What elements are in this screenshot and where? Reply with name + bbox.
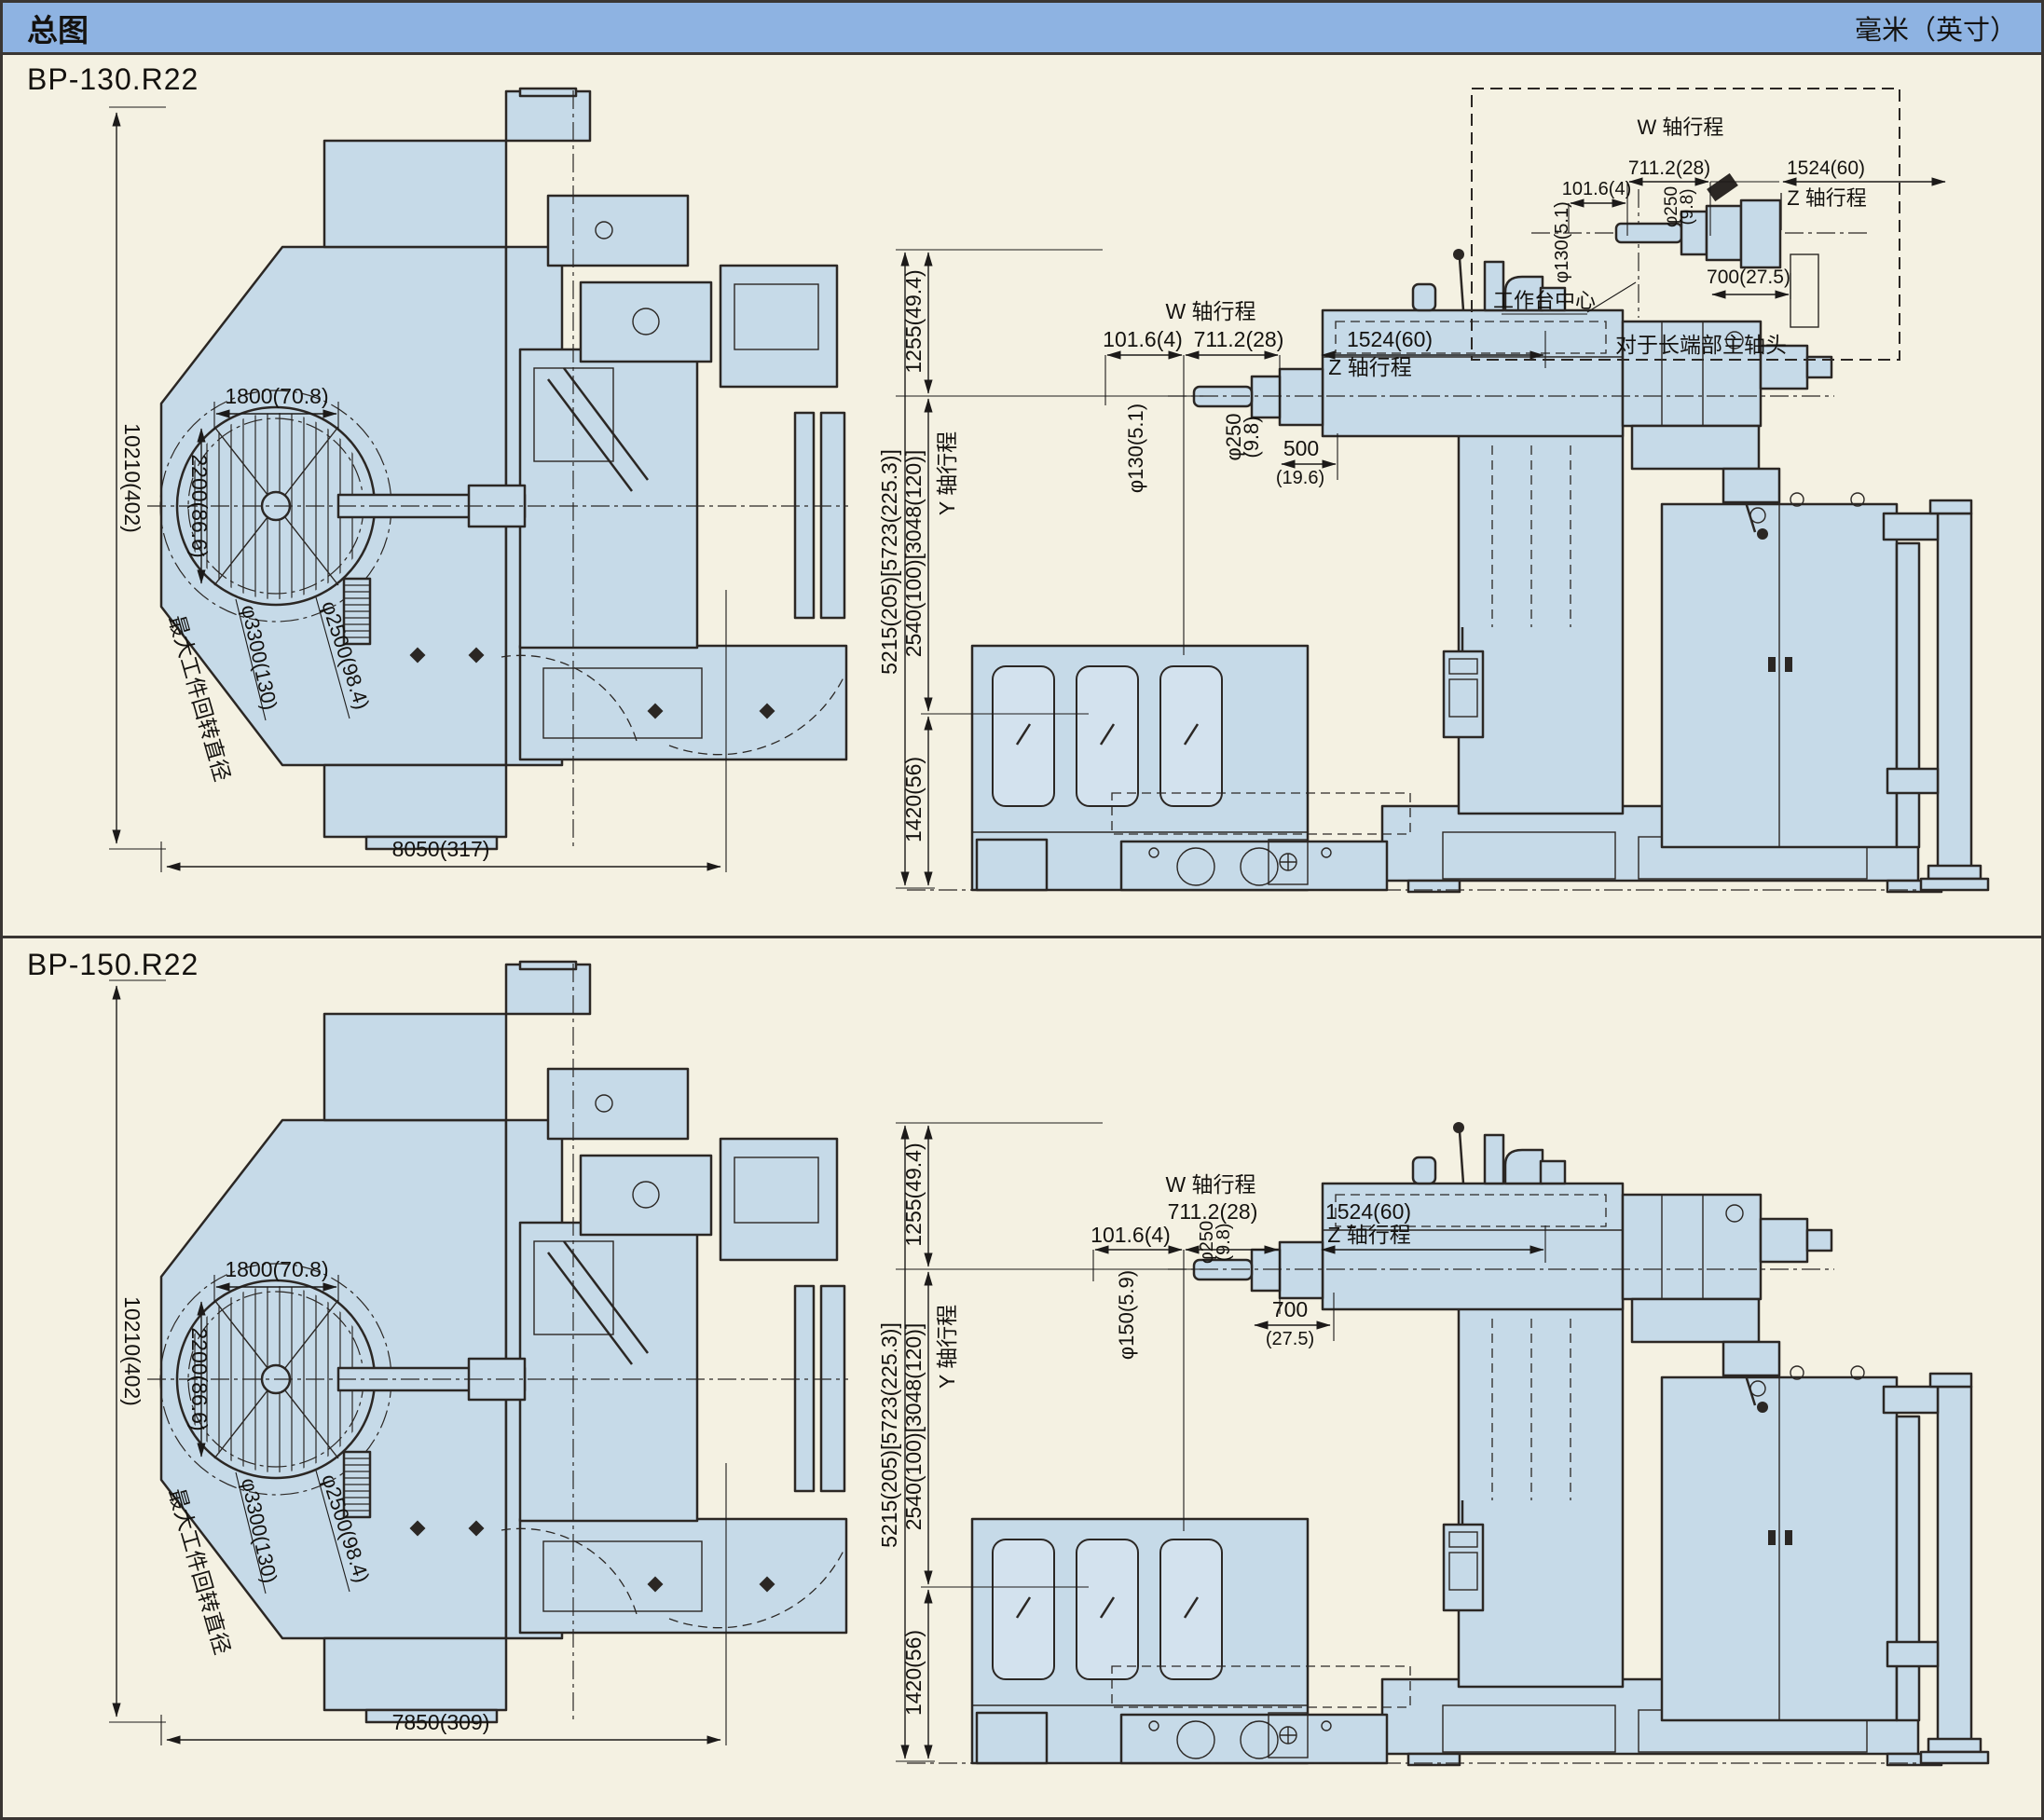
inset-label-z-axis: Z 轴行程: [1787, 186, 1867, 210]
inset-caption: 对于长端部主轴头: [1615, 333, 1787, 357]
engineering-drawing: 10210(402) 8050(317) 1800(70.8) 2200(86.…: [3, 3, 2044, 1820]
dim-base-segment: 1420(56): [901, 1630, 926, 1716]
dim-quill-dia-inch: (9.8): [1240, 416, 1263, 458]
dim-quill-ext: 500: [1283, 436, 1319, 460]
dim-base-segment: 1420(56): [901, 757, 926, 842]
inset-label-table-center: 工作台中心: [1493, 289, 1596, 312]
dim-quill-ext-inch: (19.6): [1276, 468, 1324, 488]
dim-table-depth: 2200(86.6): [187, 1327, 212, 1430]
dim-overall-depth: 10210(402): [120, 423, 144, 533]
dim-w-extra: 101.6(4): [1091, 1223, 1171, 1247]
inset-dim-z-travel: 1524(60): [1787, 157, 1865, 179]
inset-dim-spindle-dia: φ130(5.1): [1552, 201, 1572, 282]
dim-w-travel: 711.2(28): [1194, 327, 1284, 351]
dim-overall-height: 5215(205)[5723(225.3)]: [877, 1322, 901, 1548]
dim-w-extra: 101.6(4): [1103, 327, 1183, 351]
dim-top-segment: 1255(49.4): [901, 1143, 926, 1246]
dim-quill-ext-inch: (27.5): [1266, 1329, 1314, 1349]
label-w-axis: W 轴行程: [1165, 299, 1255, 323]
inset-dim-quill-dia-inch: (9.8): [1678, 188, 1697, 225]
dim-quill-dia-inch: (9.8): [1214, 1223, 1234, 1261]
label-w-axis: W 轴行程: [1165, 1172, 1255, 1197]
dim-w-travel: 711.2(28): [1168, 1199, 1258, 1224]
dim-overall-height: 5215(205)[5723(225.3)]: [877, 449, 901, 675]
dim-table-width: 1800(70.8): [225, 384, 328, 408]
label-z-axis: Z 轴行程: [1328, 355, 1411, 379]
inset-dim-w-travel: 711.2(28): [1628, 157, 1710, 179]
dim-table-depth: 2200(86.6): [187, 454, 212, 557]
inset-label-w-axis: W 轴行程: [1638, 116, 1724, 139]
dim-y-travel: 2540(100)[3048(120)]: [901, 1323, 926, 1531]
dim-spindle-dia: φ130(5.1): [1124, 404, 1147, 493]
dim-top-segment: 1255(49.4): [901, 269, 926, 373]
label-y-axis: Y 轴行程: [935, 431, 959, 515]
dim-y-travel: 2540(100)[3048(120)]: [901, 450, 926, 658]
dim-z-travel: 1524(60): [1347, 327, 1433, 351]
inset-dim-w-extra: 101.6(4): [1562, 179, 1632, 199]
dim-overall-length: 7850(309): [392, 1710, 490, 1734]
dim-spindle-dia: φ150(5.9): [1115, 1270, 1138, 1360]
section-bp130: 10210(402) 8050(317) 1800(70.8) 2200(86.…: [109, 89, 1988, 892]
dim-table-width: 1800(70.8): [225, 1257, 328, 1281]
dim-overall-length: 8050(317): [392, 837, 490, 861]
dim-overall-depth: 10210(402): [120, 1296, 144, 1406]
dim-quill-ext: 700: [1272, 1297, 1308, 1321]
drawing-sheet: 总图 毫米（英寸） BP-130.R22 BP-150.R22: [0, 0, 2044, 1820]
label-z-axis: Z 轴行程: [1327, 1223, 1410, 1247]
inset-dim-head-ext: 700(27.5): [1707, 267, 1790, 288]
label-y-axis: Y 轴行程: [935, 1305, 959, 1389]
section-bp150: 10210(402) 7850(309) 1800(70.8) 2200(86.…: [109, 962, 1988, 1765]
dim-z-travel: 1524(60): [1325, 1199, 1411, 1224]
